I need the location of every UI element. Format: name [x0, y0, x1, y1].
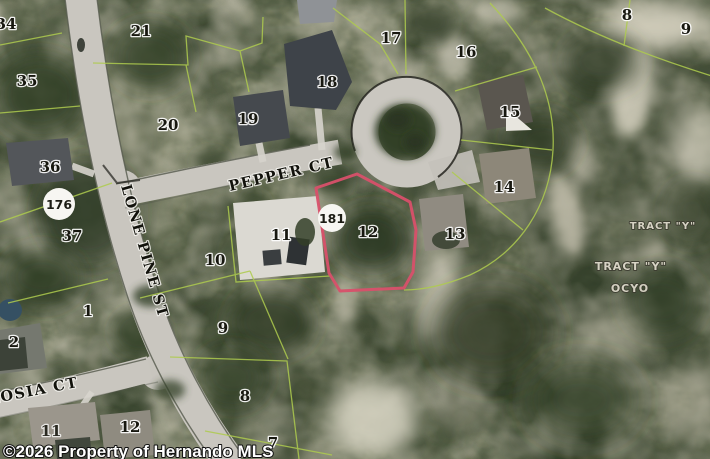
lot-label-18: 18: [317, 73, 338, 91]
lot-label-17: 17: [381, 29, 402, 47]
tract-label-1: TRACT "Y": [630, 221, 697, 232]
lot-label-34: 34: [0, 15, 16, 33]
lot-label-37: 37: [62, 227, 83, 245]
lot-label-21: 21: [131, 22, 152, 40]
marker-circle-181-label: 181: [319, 211, 345, 226]
vehicle: [262, 249, 281, 266]
lot-label-2: 2: [9, 333, 19, 351]
house-top-edge: [297, 0, 337, 24]
marker-circle-176-label: 176: [46, 197, 72, 212]
lot-label-11-south: 11: [41, 422, 62, 440]
lot-label-13: 13: [445, 225, 466, 243]
lot-label-14: 14: [494, 178, 515, 196]
lot-label-9-ne: 9: [681, 20, 691, 38]
mls-watermark: ©2026 Property of Hernando MLS: [3, 442, 273, 459]
lot-label-16: 16: [456, 43, 477, 61]
lot-label-20: 20: [158, 116, 179, 134]
lot-label-15: 15: [500, 103, 521, 121]
map-canvas: 176 181 34 35 36 37 1 2 21 20 19 18 17 1…: [0, 0, 710, 459]
lot-label-1: 1: [83, 302, 93, 320]
lot-label-36: 36: [40, 158, 61, 176]
tree-on-pad: [295, 218, 315, 246]
lot-label-19: 19: [238, 110, 259, 128]
lot-label-8-ne: 8: [622, 6, 632, 24]
tract-label-2: TRACT "Y": [595, 260, 667, 273]
tract-label-3: OCYO: [611, 282, 649, 295]
lot-label-10: 10: [205, 251, 226, 269]
lot-label-11: 11: [271, 226, 292, 244]
lot-label-12-south: 12: [120, 418, 141, 436]
lot-label-12: 12: [358, 223, 379, 241]
lot-label-8: 8: [240, 387, 250, 405]
lot-label-9: 9: [218, 319, 228, 337]
lot-label-35: 35: [17, 72, 38, 90]
aerial-parcel-map: 176 181 34 35 36 37 1 2 21 20 19 18 17 1…: [0, 0, 710, 459]
